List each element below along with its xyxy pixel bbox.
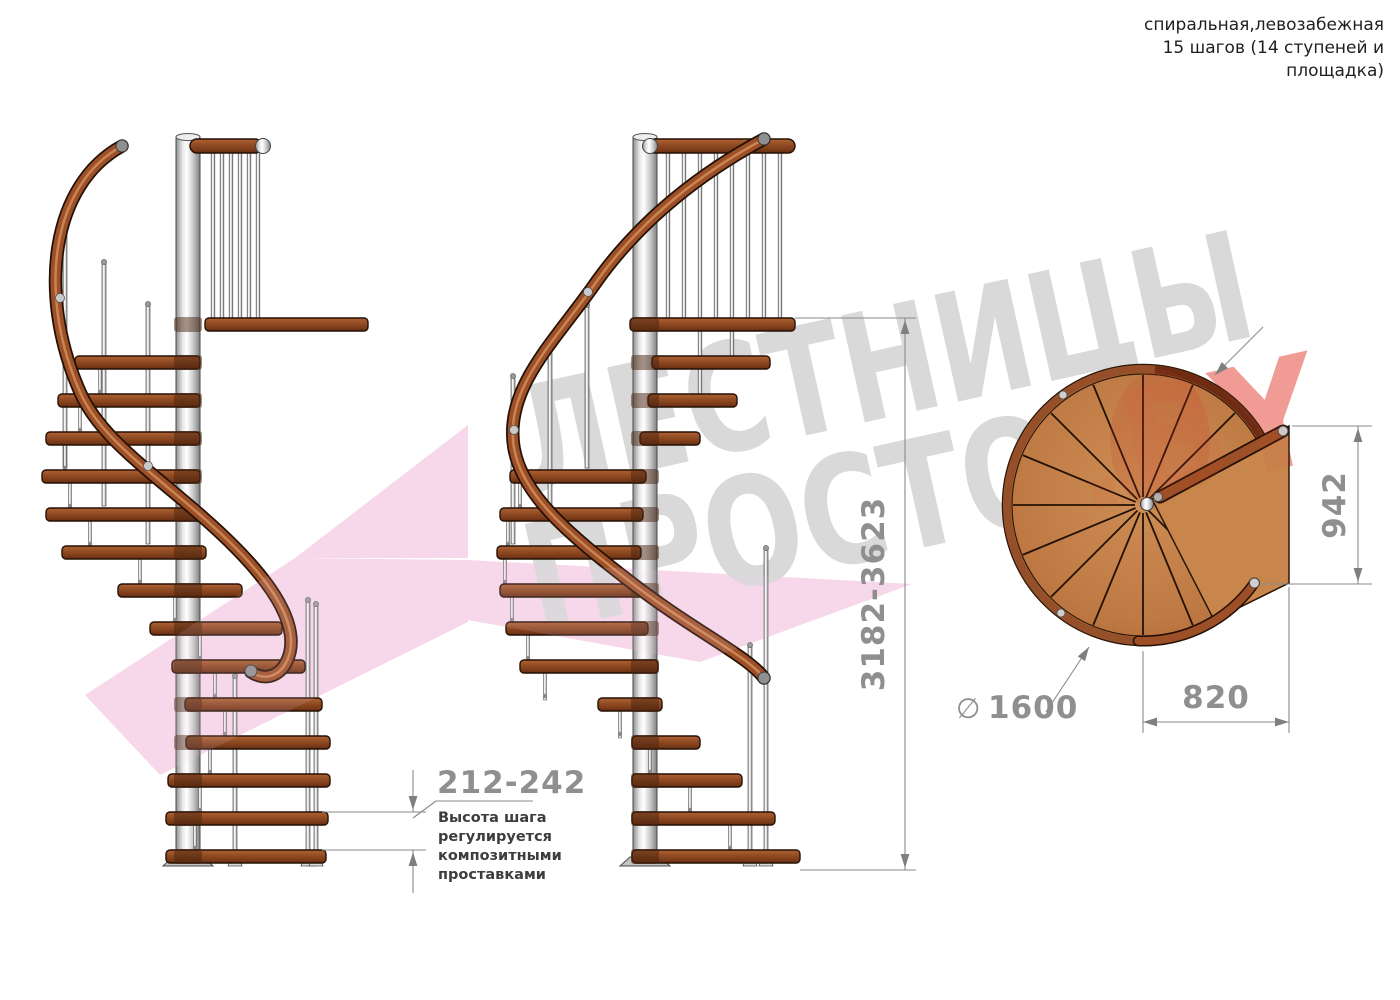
- handrail-sleeve: [584, 288, 593, 297]
- dimension-arrowhead: [1354, 428, 1363, 442]
- landing-railing-bar: [648, 139, 795, 153]
- pole-sleeve: [631, 773, 659, 788]
- pole-sleeve: [174, 583, 202, 598]
- title-line-3: площадка): [1144, 60, 1384, 83]
- tread: [500, 508, 643, 521]
- baluster-collar: [101, 259, 106, 264]
- title-line-1: спиральная,левозабежная: [1144, 14, 1384, 37]
- pole-sleeve: [631, 317, 659, 332]
- step-height-note-line4: проставками: [438, 867, 546, 883]
- pole-sleeve: [631, 659, 659, 674]
- pole-sleeve: [174, 773, 202, 788]
- tread: [497, 546, 641, 559]
- pole-sleeve: [631, 545, 659, 560]
- pole-sleeve: [174, 469, 202, 484]
- landing-railing-bar: [190, 139, 262, 153]
- pole-sleeve: [631, 811, 659, 826]
- pole-sleeve: [174, 393, 202, 408]
- drawing-title: спиральная,левозабежная 15 шагов (14 сту…: [1144, 14, 1384, 83]
- step-height-note-line1: Высота шага: [438, 810, 547, 826]
- dimension-arrowhead: [409, 796, 418, 810]
- handrail-end-cap: [758, 672, 770, 684]
- handrail-sleeve: [56, 294, 65, 303]
- rim-baluster-dot: [1057, 609, 1065, 617]
- baluster: [585, 305, 589, 468]
- page: ЛЕСТНИЦЫ ПРОСТО .BY .BY 3182-3623 942 82…: [0, 0, 1400, 1000]
- pole-sleeve: [174, 811, 202, 826]
- pole-sleeve: [631, 735, 659, 750]
- total-height-dimension: 3182-3623: [856, 497, 892, 691]
- tread: [652, 356, 770, 369]
- handrail-sleeve: [144, 462, 153, 471]
- landing-depth-dimension: 820: [1182, 680, 1250, 716]
- baluster-collar: [510, 373, 515, 378]
- railing-baluster: [220, 151, 224, 318]
- staircase-drawing: ЛЕСТНИЦЫ ПРОСТО .BY .BY 3182-3623 942 82…: [0, 0, 1400, 1000]
- plan-handrail-cap: [1249, 578, 1259, 588]
- railing-baluster: [778, 151, 782, 318]
- dimension-arrowhead: [1354, 568, 1363, 582]
- baluster: [748, 645, 752, 864]
- title-line-2: 15 шагов (14 ступеней и: [1144, 37, 1384, 60]
- step-height-note-line3: композитными: [438, 848, 562, 864]
- handrail-end-cap: [116, 140, 128, 152]
- railing-baluster: [762, 151, 766, 318]
- step-height-dimension: 212-242: [437, 765, 586, 801]
- dimension-arrowhead: [409, 852, 418, 866]
- dimension-arrowhead: [1275, 718, 1289, 727]
- railing-baluster: [746, 151, 750, 318]
- pole-sleeve: [631, 431, 659, 446]
- pole-sleeve: [174, 545, 202, 560]
- pole-sleeve: [631, 355, 659, 370]
- tread: [205, 318, 368, 331]
- pole-sleeve: [174, 317, 202, 332]
- diameter-dimension: 1600: [988, 690, 1078, 726]
- railing-baluster: [247, 151, 251, 318]
- railing-end-cap: [256, 139, 271, 154]
- pole-sleeve: [631, 393, 659, 408]
- dimension-line: [413, 801, 436, 818]
- railing-baluster: [256, 151, 260, 318]
- left-elevation-view: [42, 134, 368, 867]
- landing-width-dimension: 942: [1317, 471, 1353, 539]
- railing-baluster: [211, 151, 215, 318]
- dimension-arrowhead: [901, 854, 910, 868]
- baluster-collar: [145, 301, 150, 306]
- pole-sleeve: [631, 507, 659, 522]
- railing-baluster: [229, 151, 233, 318]
- pole-sleeve: [174, 849, 202, 864]
- connector-collar: [543, 694, 547, 698]
- handrail-sleeve: [510, 426, 519, 435]
- pole-sleeve: [631, 697, 659, 712]
- pole-sleeve: [174, 355, 202, 370]
- handrail-end-cap: [758, 133, 770, 145]
- tread: [648, 394, 737, 407]
- dimension-arrowhead: [1143, 718, 1157, 727]
- railing-baluster: [666, 151, 670, 318]
- diameter-symbol: ∅: [956, 692, 980, 725]
- pole-sleeve: [174, 431, 202, 446]
- pole-sleeve: [631, 469, 659, 484]
- baluster-collar: [763, 545, 768, 550]
- pole-sleeve: [631, 849, 659, 864]
- center-pole: [633, 137, 657, 866]
- connector-collar: [618, 732, 622, 736]
- railing-baluster: [682, 151, 686, 318]
- railing-baluster: [238, 151, 242, 318]
- railing-end-cap: [643, 139, 658, 154]
- dimension-arrowhead: [1078, 645, 1093, 662]
- step-height-note-line2: регулируется: [438, 829, 552, 845]
